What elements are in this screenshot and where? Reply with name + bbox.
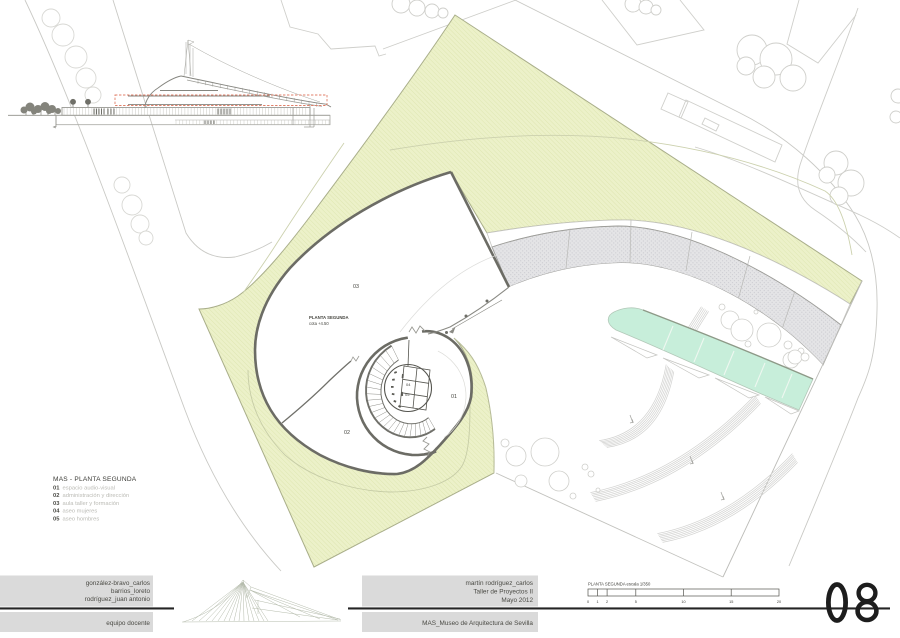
svg-text:martín rodríguez_carlos: martín rodríguez_carlos bbox=[466, 580, 534, 587]
svg-text:administración y dirección: administración y dirección bbox=[63, 493, 130, 499]
svg-text:05: 05 bbox=[405, 392, 410, 397]
svg-text:15: 15 bbox=[729, 600, 733, 604]
svg-text:5: 5 bbox=[635, 600, 637, 604]
svg-text:02: 02 bbox=[53, 493, 59, 499]
svg-text:01: 01 bbox=[53, 486, 60, 492]
svg-text:aseo hombres: aseo hombres bbox=[63, 516, 100, 522]
svg-text:10: 10 bbox=[681, 600, 685, 604]
svg-text:04: 04 bbox=[53, 509, 60, 515]
svg-text:MAS - PLANTA SEGUNDA: MAS - PLANTA SEGUNDA bbox=[53, 476, 137, 483]
svg-text:01: 01 bbox=[451, 394, 457, 400]
svg-text:gonzález-bravo_carlos: gonzález-bravo_carlos bbox=[86, 580, 150, 587]
svg-text:aula taller y formación: aula taller y formación bbox=[63, 501, 120, 507]
svg-text:1: 1 bbox=[596, 600, 598, 604]
svg-text:04: 04 bbox=[406, 382, 411, 387]
svg-text:05: 05 bbox=[53, 516, 60, 522]
svg-text:cota +4.50: cota +4.50 bbox=[309, 321, 329, 326]
svg-text:03: 03 bbox=[53, 501, 60, 507]
svg-text:03: 03 bbox=[353, 284, 359, 290]
svg-text:Taller de Proyectos II: Taller de Proyectos II bbox=[473, 589, 533, 596]
svg-text:2: 2 bbox=[606, 600, 608, 604]
svg-text:0: 0 bbox=[587, 600, 589, 604]
svg-text:espacio audio-visual: espacio audio-visual bbox=[63, 486, 116, 492]
svg-text:MAS_Museo de Arquitectura de S: MAS_Museo de Arquitectura de Sevilla bbox=[422, 620, 533, 627]
svg-text:02: 02 bbox=[344, 430, 350, 436]
svg-text:Mayo 2012: Mayo 2012 bbox=[501, 597, 533, 604]
svg-text:barrios_loreto: barrios_loreto bbox=[111, 588, 151, 595]
svg-text:PLANTA SEGUNDA escala 1/350: PLANTA SEGUNDA escala 1/350 bbox=[588, 582, 651, 587]
svg-text:rodríguez_juan antonio: rodríguez_juan antonio bbox=[85, 596, 151, 603]
svg-text:20: 20 bbox=[777, 600, 781, 604]
svg-text:aseo mujeres: aseo mujeres bbox=[63, 509, 98, 515]
svg-text:PLANTA SEGUNDA: PLANTA SEGUNDA bbox=[309, 315, 349, 320]
svg-text:equipo docente: equipo docente bbox=[106, 620, 150, 627]
